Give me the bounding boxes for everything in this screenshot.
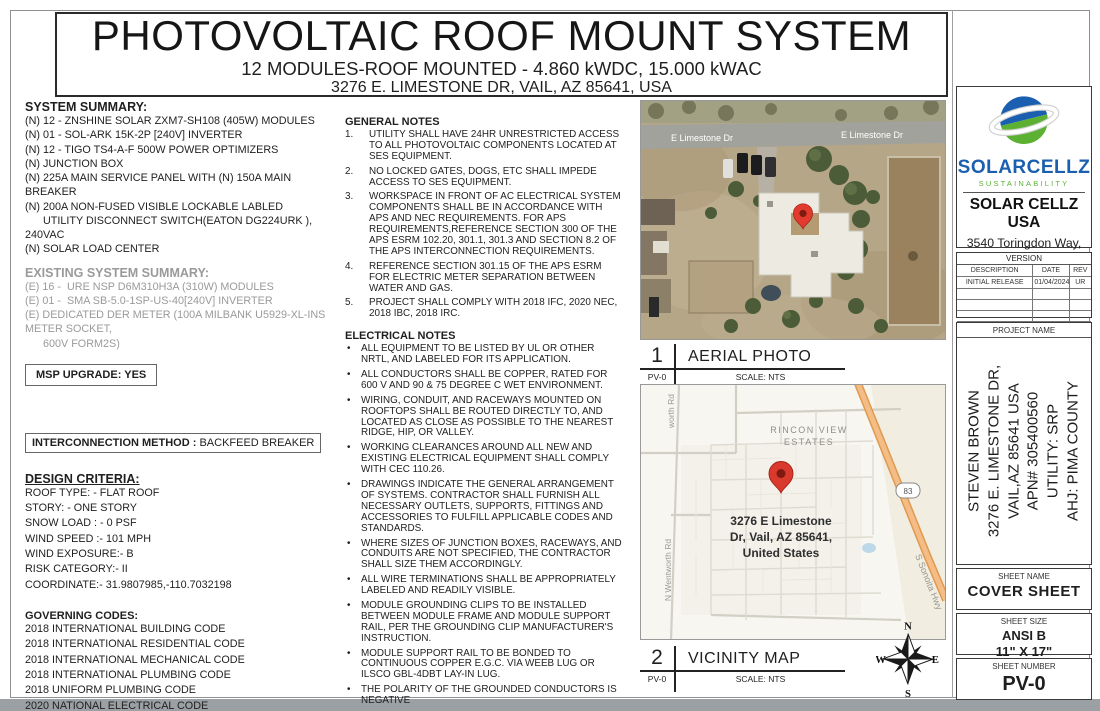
note-text: UTILITY SHALL HAVE 24HR UNRESTRICTED ACC…	[369, 130, 623, 163]
bullet-icon: •	[345, 480, 361, 534]
design-criteria-item: ROOF TYPE: - FLAT ROOF	[25, 486, 340, 501]
governing-codes-item: 2018 INTERNATIONAL MECHANICAL CODE	[25, 653, 340, 668]
design-criteria-list: ROOF TYPE: - FLAT ROOFSTORY: - ONE STORY…	[25, 486, 340, 593]
note-number: 4.	[345, 262, 369, 295]
sheet-size-standard: ANSI B	[957, 628, 1091, 644]
page-title: PHOTOVOLTAIC ROOF MOUNT SYSTEM	[57, 14, 946, 58]
electrical-note: • DRAWINGS INDICATE THE GENERAL ARRANGEM…	[345, 480, 623, 534]
sheet-size-label: SHEET SIZE	[957, 614, 1091, 628]
electrical-note: • WHERE SIZES OF JUNCTION BOXES, RACEWAY…	[345, 539, 623, 572]
msp-upgrade-value: YES	[124, 369, 146, 381]
version-rev	[1070, 311, 1091, 322]
titleblock-divider	[952, 10, 953, 698]
divider	[963, 192, 1085, 193]
governing-codes-item: 2018 INTERNATIONAL RESIDENTIAL CODE	[25, 637, 340, 652]
note-text: DRAWINGS INDICATE THE GENERAL ARRANGEMEN…	[361, 480, 623, 534]
sheet-name-label: SHEET NAME	[957, 569, 1091, 583]
note-number: 3.	[345, 192, 369, 257]
note-number: 1.	[345, 130, 369, 163]
marker-address: 3276 E Limestone	[730, 514, 832, 528]
version-title: VERSION	[957, 253, 1091, 265]
bullet-icon: •	[345, 370, 361, 392]
design-criteria-item: COORDINATE:- 31.9807985,-110.7032198	[25, 578, 340, 593]
version-row	[957, 311, 1091, 322]
version-date: 01/04/2024	[1033, 277, 1069, 289]
system-summary-item: (N) 225A MAIN SERVICE PANEL WITH (N) 150…	[25, 171, 340, 200]
general-note: 2. NO LOCKED GATES, DOGS, ETC SHALL IMPE…	[345, 167, 623, 189]
figure-number: 2	[640, 646, 676, 670]
aerial-photo: E Limestone Dr E Limestone Dr	[640, 100, 946, 340]
figure-title: VICINITY MAP	[676, 648, 800, 670]
note-number: 5.	[345, 298, 369, 320]
governing-codes-item: 2018 INTERNATIONAL BUILDING CODE	[25, 622, 340, 637]
note-text: MODULE GROUNDING CLIPS TO BE INSTALLED B…	[361, 601, 623, 645]
project-name-block: PROJECT NAME STEVEN BROWN3276 E. LIMESTO…	[956, 322, 1092, 565]
interconnection-box: INTERCONNECTION METHOD : BACKFEED BREAKE…	[25, 433, 321, 453]
note-text: ALL EQUIPMENT TO BE LISTED BY UL OR OTHE…	[361, 344, 623, 366]
bullet-icon: •	[345, 575, 361, 597]
bullet-icon: •	[345, 396, 361, 440]
version-row: INITIAL RELEASE 01/04/2024 UR	[957, 277, 1091, 289]
general-notes-heading: GENERAL NOTES	[345, 116, 623, 128]
project-info-line: VAIL,AZ 85641 USA	[1004, 341, 1024, 561]
system-summary-heading: SYSTEM SUMMARY:	[25, 100, 340, 114]
note-number: 2.	[345, 167, 369, 189]
title-block: PHOTOVOLTAIC ROOF MOUNT SYSTEM 12 MODULE…	[55, 12, 948, 97]
system-summary-item: (N) 200A NON-FUSED VISIBLE LOCKABLE LABL…	[25, 200, 340, 214]
note-text: WORKSPACE IN FRONT OF AC ELECTRICAL SYST…	[369, 192, 623, 257]
bullet-icon: •	[345, 344, 361, 366]
system-summary-item: (N) SOLAR LOAD CENTER	[25, 242, 340, 256]
design-criteria-heading: DESIGN CRITERIA:	[25, 472, 340, 486]
interconnection-value: BACKFEED BREAKER	[199, 437, 314, 449]
general-note: 4. REFERENCE SECTION 301.15 OF THE APS E…	[345, 262, 623, 295]
version-description	[957, 311, 1033, 322]
sheet-size-block: SHEET SIZE ANSI B 11" X 17"	[956, 613, 1092, 655]
version-header: DATE	[1033, 265, 1069, 277]
brand-tagline: SUSTAINABILITY	[957, 179, 1091, 188]
system-summary-item: UTILITY DISCONNECT SWITCH(EATON DG224URK…	[25, 214, 340, 243]
sheet-name-block: SHEET NAME COVER SHEET	[956, 568, 1092, 610]
company-block: SOLARCELLZ SUSTAINABILITY SOLAR CELLZ US…	[956, 86, 1092, 248]
electrical-note: • THE POLARITY OF THE GROUNDED CONDUCTOR…	[345, 685, 623, 707]
project-info-line: UTILITY: SRP	[1044, 341, 1064, 561]
vicinity-map-image: 83 RINCON VIEW ESTATES N Wentworth Rd wo…	[641, 385, 946, 640]
system-summary-section: SYSTEM SUMMARY: (N) 12 - ZNSHINE SOLAR Z…	[25, 100, 340, 257]
brand-name: SOLARCELLZ	[957, 157, 1091, 179]
general-note: 1. UTILITY SHALL HAVE 24HR UNRESTRICTED …	[345, 130, 623, 163]
governing-codes-item: 2018 INTERNATIONAL PLUMBING CODE	[25, 668, 340, 683]
version-description: INITIAL RELEASE	[957, 277, 1033, 289]
project-info-line: AHJ: PIMA COUNTY	[1064, 341, 1084, 561]
design-criteria-item: WIND SPEED :- 101 MPH	[25, 532, 340, 547]
road-label: worth Rd	[666, 394, 676, 429]
figure-number: 1	[640, 344, 676, 368]
existing-summary-list: (E) 16 - URE NSP D6M310H3A (310W) MODULE…	[25, 280, 340, 351]
general-note: 3. WORKSPACE IN FRONT OF AC ELECTRICAL S…	[345, 192, 623, 257]
bullet-icon: •	[345, 443, 361, 476]
sheet-name-value: COVER SHEET	[957, 583, 1091, 600]
left-column: SYSTEM SUMMARY: (N) 12 - ZNSHINE SOLAR Z…	[25, 100, 340, 711]
version-date	[1033, 311, 1069, 322]
electrical-note: • MODULE GROUNDING CLIPS TO BE INSTALLED…	[345, 601, 623, 645]
sheet-size-value: ANSI B 11" X 17"	[957, 628, 1091, 661]
note-text: WHERE SIZES OF JUNCTION BOXES, RACEWAYS,…	[361, 539, 623, 572]
existing-summary-item: (E) 01 - SMA SB-5.0-1SP-US-40[240V] INVE…	[25, 294, 340, 308]
existing-summary-item: (E) DEDICATED DER METER (100A MILBANK U5…	[25, 308, 340, 337]
governing-codes-heading: GOVERNING CODES:	[25, 610, 340, 622]
bullet-icon: •	[345, 539, 361, 572]
note-text: ALL WIRE TERMINATIONS SHALL BE APPROPRIA…	[361, 575, 623, 597]
general-notes-list: 1. UTILITY SHALL HAVE 24HR UNRESTRICTED …	[345, 130, 623, 320]
bullet-icon: •	[345, 649, 361, 682]
existing-summary-item: (E) 16 - URE NSP D6M310H3A (310W) MODULE…	[25, 280, 340, 294]
page-subtitle: 12 MODULES-ROOF MOUNTED - 4.860 kWDC, 15…	[57, 58, 946, 79]
version-rev	[1070, 289, 1091, 300]
design-criteria-item: WIND EXPOSURE:- B	[25, 547, 340, 562]
estates-label: RINCON VIEW	[770, 425, 848, 435]
general-note: 5. PROJECT SHALL COMPLY WITH 2018 IFC, 2…	[345, 298, 623, 320]
system-summary-item: (N) 12 - ZNSHINE SOLAR ZXM7-SH108 (405W)…	[25, 114, 340, 128]
address-line: 3540 Toringdon Way,	[957, 236, 1091, 251]
system-summary-item: (N) JUNCTION BOX	[25, 157, 340, 171]
highway-83-badge: 83	[896, 483, 920, 498]
note-text: ALL CONDUCTORS SHALL BE COPPER, RATED FO…	[361, 370, 623, 392]
design-criteria-item: STORY: - ONE STORY	[25, 501, 340, 516]
governing-codes-item: 2020 NATIONAL ELECTRICAL CODE	[25, 699, 340, 711]
system-summary-item: (N) 12 - TIGO TS4-A-F 500W POWER OPTIMIZ…	[25, 143, 340, 157]
electrical-note: • ALL CONDUCTORS SHALL BE COPPER, RATED …	[345, 370, 623, 392]
project-name-label: PROJECT NAME	[957, 323, 1091, 338]
version-rows: INITIAL RELEASE 01/04/2024 UR	[957, 277, 1091, 322]
bullet-icon: •	[345, 601, 361, 645]
version-table: VERSION DESCRIPTION DATE REV INITIAL REL…	[956, 252, 1092, 318]
version-date	[1033, 300, 1069, 311]
version-row	[957, 300, 1091, 311]
version-rev	[1070, 300, 1091, 311]
general-notes-section: GENERAL NOTES 1. UTILITY SHALL HAVE 24HR…	[345, 116, 623, 320]
marker-address: United States	[743, 546, 820, 560]
msp-upgrade-label: MSP UPGRADE:	[36, 369, 121, 381]
version-header-row: DESCRIPTION DATE REV	[957, 265, 1091, 277]
version-date	[1033, 289, 1069, 300]
note-text: WORKING CLEARANCES AROUND ALL NEW AND EX…	[361, 443, 623, 476]
governing-codes-item: 2018 UNIFORM PLUMBING CODE	[25, 683, 340, 698]
electrical-notes-heading: ELECTRICAL NOTES	[345, 330, 623, 342]
version-description	[957, 289, 1033, 300]
design-criteria-item: RISK CATEGORY:- II	[25, 562, 340, 577]
svg-text:S: S	[905, 688, 911, 700]
street-label: E Limestone Dr	[841, 130, 903, 140]
note-text: NO LOCKED GATES, DOGS, ETC SHALL IMPEDE …	[369, 167, 623, 189]
marker-address: Dr, Vail, AZ 85641,	[730, 530, 832, 544]
system-summary-item: (N) 01 - SOL-ARK 15K-2P [240V] INVERTER	[25, 128, 340, 142]
governing-codes-list: 2018 INTERNATIONAL BUILDING CODE2018 INT…	[25, 622, 340, 711]
project-info-line: 3276 E. LIMESTONE DR,	[984, 341, 1004, 561]
svg-text:E: E	[932, 654, 939, 666]
project-info-line: STEVEN BROWN	[965, 341, 985, 561]
sheet-number-block: SHEET NUMBER PV-0	[956, 658, 1092, 700]
street-label: E Limestone Dr	[671, 133, 733, 143]
sheet-number-value: PV-0	[957, 673, 1091, 696]
project-info-line: APN# 305400560	[1024, 341, 1044, 561]
electrical-note: • WORKING CLEARANCES AROUND ALL NEW AND …	[345, 443, 623, 476]
note-text: THE POLARITY OF THE GROUNDED CONDUCTORS …	[361, 685, 623, 707]
design-criteria-section: DESIGN CRITERIA: ROOF TYPE: - FLAT ROOFS…	[25, 472, 340, 593]
sheet-number-label: SHEET NUMBER	[957, 659, 1091, 673]
electrical-note: • ALL WIRE TERMINATIONS SHALL BE APPROPR…	[345, 575, 623, 597]
notes-column: GENERAL NOTES 1. UTILITY SHALL HAVE 24HR…	[345, 116, 623, 711]
svg-text:83: 83	[904, 487, 913, 496]
system-summary-list: (N) 12 - ZNSHINE SOLAR ZXM7-SH108 (405W)…	[25, 114, 340, 257]
electrical-notes-list: • ALL EQUIPMENT TO BE LISTED BY UL OR OT…	[345, 344, 623, 707]
vicinity-map: 83 RINCON VIEW ESTATES N Wentworth Rd wo…	[640, 384, 946, 640]
vicinity-figure-label: 2 VICINITY MAP PV-0 SCALE: NTS	[640, 646, 845, 692]
existing-summary-item: 600V FORM2S)	[25, 337, 340, 351]
governing-codes-section: GOVERNING CODES: 2018 INTERNATIONAL BUIL…	[25, 610, 340, 711]
svg-text:N: N	[904, 621, 912, 633]
electrical-notes-section: ELECTRICAL NOTES • ALL EQUIPMENT TO BE L…	[345, 330, 623, 707]
existing-summary-section: EXISTING SYSTEM SUMMARY: (E) 16 - URE NS…	[25, 266, 340, 351]
version-row	[957, 289, 1091, 300]
road-label: N Wentworth Rd	[663, 539, 673, 601]
design-criteria-item: SNOW LOAD : - 0 PSF	[25, 516, 340, 531]
electrical-note: • MODULE SUPPORT RAIL TO BE BONDED TO CO…	[345, 649, 623, 682]
electrical-note: • ALL EQUIPMENT TO BE LISTED BY UL OR OT…	[345, 344, 623, 366]
bullet-icon: •	[345, 685, 361, 707]
figure-sheet-ref: PV-0	[640, 672, 676, 692]
interconnection-label: INTERCONNECTION METHOD :	[32, 437, 196, 449]
note-text: REFERENCE SECTION 301.15 OF THE APS ESRM…	[369, 262, 623, 295]
project-info: STEVEN BROWN3276 E. LIMESTONE DR,VAIL,AZ…	[965, 341, 1084, 561]
figure-title: AERIAL PHOTO	[676, 346, 811, 368]
planet-logo-icon	[978, 89, 1070, 155]
cover-sheet: PHOTOVOLTAIC ROOF MOUNT SYSTEM 12 MODULE…	[0, 0, 1100, 711]
site-address: 3276 E. LIMESTONE DR, VAIL, AZ 85641, US…	[57, 79, 946, 97]
svg-text:W: W	[876, 654, 886, 666]
version-header: DESCRIPTION	[957, 265, 1033, 277]
note-text: PROJECT SHALL COMPLY WITH 2018 IFC, 2020…	[369, 298, 623, 320]
estates-label: ESTATES	[784, 437, 834, 447]
msp-upgrade-box: MSP UPGRADE: YES	[25, 364, 157, 386]
company-name: SOLAR CELLZ USA	[957, 196, 1091, 232]
figure-scale: SCALE: NTS	[676, 672, 845, 692]
version-header: REV	[1070, 265, 1091, 277]
version-description	[957, 300, 1033, 311]
existing-summary-heading: EXISTING SYSTEM SUMMARY:	[25, 266, 340, 280]
aerial-photo-image: E Limestone Dr E Limestone Dr	[641, 101, 946, 340]
compass-rose-icon: N S W E	[876, 618, 940, 700]
note-text: MODULE SUPPORT RAIL TO BE BONDED TO CONT…	[361, 649, 623, 682]
version-rev: UR	[1070, 277, 1091, 289]
electrical-note: • WIRING, CONDUIT, AND RACEWAYS MOUNTED …	[345, 396, 623, 440]
note-text: WIRING, CONDUIT, AND RACEWAYS MOUNTED ON…	[361, 396, 623, 440]
